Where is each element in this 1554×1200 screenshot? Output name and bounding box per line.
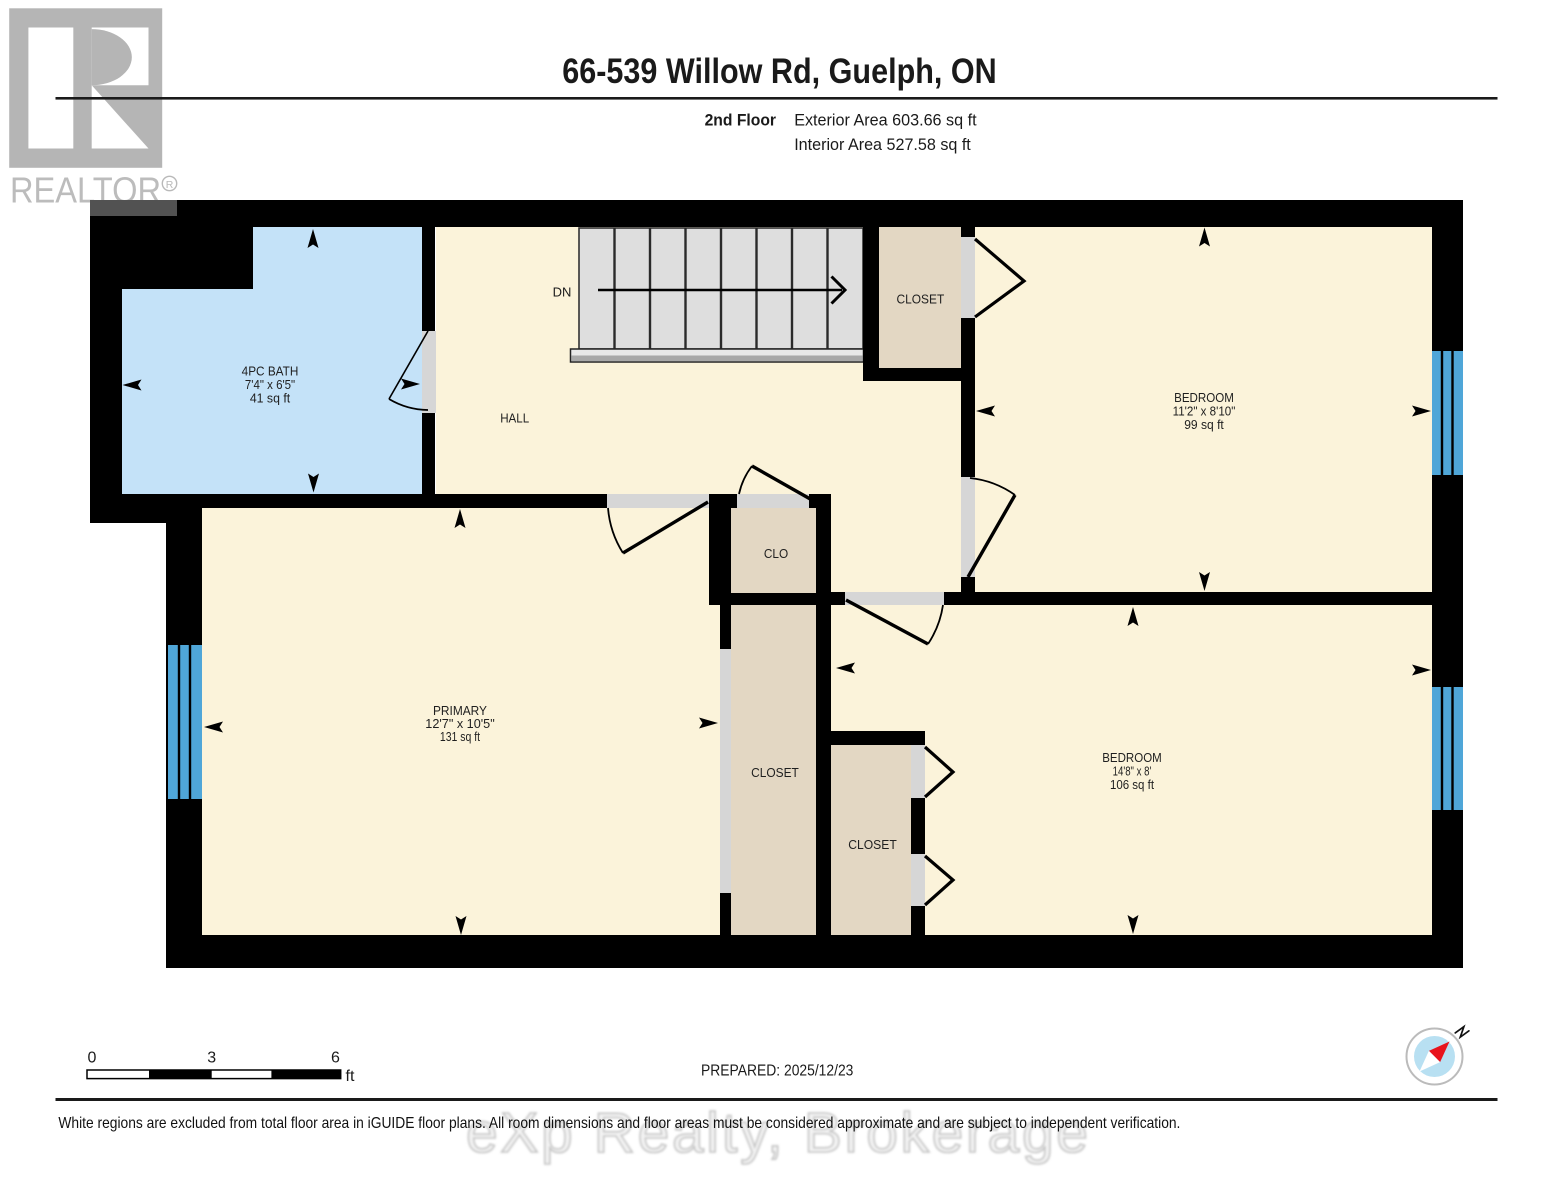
svg-text:99 sq ft: 99 sq ft (1184, 417, 1224, 432)
svg-text:CLO: CLO (764, 546, 788, 561)
svg-text:41 sq ft: 41 sq ft (250, 391, 291, 406)
svg-text:106 sq ft: 106 sq ft (1110, 777, 1154, 792)
svg-text:PREPARED: 2025/12/23: PREPARED: 2025/12/23 (701, 1062, 853, 1079)
svg-text:0: 0 (88, 1050, 97, 1067)
svg-text:2nd Floor: 2nd Floor (705, 110, 777, 129)
svg-text:CLOSET: CLOSET (897, 291, 945, 306)
svg-text:66-539 Willow Rd, Guelph, ON: 66-539 Willow Rd, Guelph, ON (562, 51, 997, 91)
svg-text:eXp Realty, Brokerage: eXp Realty, Brokerage (466, 1101, 1088, 1165)
svg-text:Interior Area 527.58 sq ft: Interior Area 527.58 sq ft (794, 135, 971, 154)
svg-text:DN: DN (553, 285, 572, 300)
svg-text:CLOSET: CLOSET (848, 837, 897, 852)
svg-text:6: 6 (331, 1050, 340, 1067)
svg-text:Exterior Area 603.66 sq ft: Exterior Area 603.66 sq ft (794, 110, 977, 129)
svg-text:White regions are excluded fro: White regions are excluded from total fl… (58, 1115, 1180, 1132)
svg-text:ft: ft (346, 1068, 355, 1085)
svg-text:HALL: HALL (500, 411, 529, 426)
svg-text:3: 3 (207, 1050, 216, 1067)
svg-text:CLOSET: CLOSET (751, 765, 799, 780)
svg-text:131 sq ft: 131 sq ft (440, 729, 481, 744)
svg-text:R: R (166, 179, 174, 191)
